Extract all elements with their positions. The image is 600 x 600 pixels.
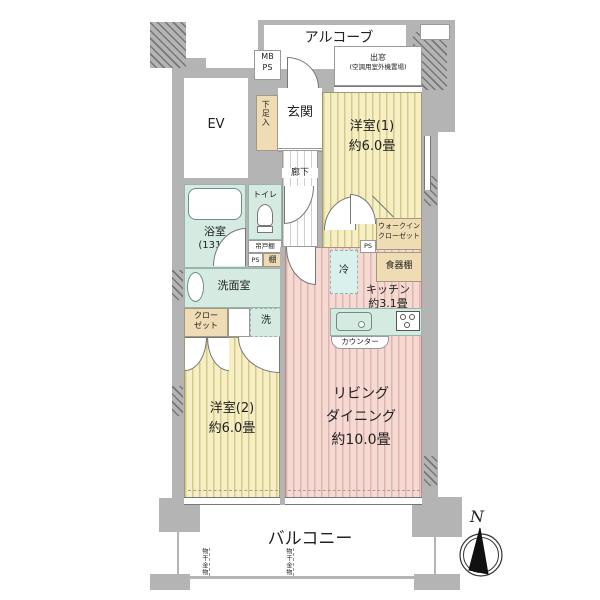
kitchen-stove bbox=[396, 311, 420, 331]
sash-line-ld bbox=[288, 490, 420, 491]
alcove-label: アルコーブ bbox=[284, 30, 394, 46]
window-room2-balcony bbox=[184, 497, 280, 505]
balcony-label: バルコニー bbox=[240, 530, 380, 550]
floor-plan: アルコーブ MB PS EV 出窓 (空調用室外機置場) 玄関 下足入 廊下 洋… bbox=[0, 0, 600, 600]
toilet-label: トイレ bbox=[248, 190, 282, 199]
shoe-cabinet-label: 下足入 bbox=[261, 100, 270, 127]
mb-label: MB bbox=[254, 52, 281, 61]
north-label: N bbox=[462, 508, 492, 526]
washer-label: 洗 bbox=[250, 315, 282, 327]
ld-label2: ダイニング bbox=[300, 409, 422, 425]
washroom-sink bbox=[187, 272, 204, 302]
bathtub bbox=[188, 188, 242, 220]
window-ld-balcony bbox=[285, 497, 422, 505]
wall-block-topleft bbox=[150, 22, 186, 68]
wic-label2: クローゼット bbox=[374, 232, 424, 240]
ps-label: PS bbox=[254, 63, 281, 72]
kitchen-sink bbox=[336, 312, 372, 331]
cupboard-label: 食器棚 bbox=[376, 261, 422, 271]
genkan-label: 玄関 bbox=[278, 106, 322, 121]
closet-label2: ゼット bbox=[184, 321, 228, 330]
washroom-label: 洗面室 bbox=[196, 280, 272, 293]
wall-hatch-left1 bbox=[172, 270, 183, 300]
ld-label1: リビング bbox=[300, 386, 422, 402]
balcony-cap-right bbox=[414, 574, 460, 590]
counter-label: カウンター bbox=[331, 338, 389, 347]
wall-hatch-left2 bbox=[172, 386, 183, 416]
balcony-cap-left bbox=[150, 574, 190, 590]
window-room1-right bbox=[424, 136, 431, 190]
balcony-rail-right bbox=[434, 532, 436, 578]
stove-burner-1 bbox=[400, 314, 406, 320]
closet-gap bbox=[228, 308, 250, 337]
bay-window-note: (空調用室外機置場) bbox=[330, 64, 426, 71]
hanging-shelf-label: 吊戸棚 bbox=[248, 243, 282, 250]
duct-box bbox=[420, 24, 450, 40]
room2-name: 洋室(2) bbox=[184, 402, 280, 417]
bay-window-label: 出窓 bbox=[334, 53, 422, 62]
balcony-rail-left bbox=[177, 532, 179, 578]
laundry-hook-1: 物干金物 bbox=[200, 548, 210, 576]
ld-label3: 約10.0畳 bbox=[300, 432, 422, 448]
wall-hatch-right2 bbox=[424, 456, 437, 486]
kitchen-sink-drain bbox=[358, 321, 365, 328]
toilet-tank bbox=[257, 226, 273, 233]
corridor-label: 廊下 bbox=[282, 168, 318, 178]
stove-burner-2 bbox=[409, 314, 415, 320]
wic-label1: ウォークイン bbox=[374, 222, 424, 230]
laundry-hook-2: 物干金物 bbox=[284, 548, 294, 576]
room1-name: 洋室(1) bbox=[322, 120, 422, 135]
closet-label1: クロー bbox=[184, 311, 228, 320]
fridge-label: 冷 bbox=[330, 265, 358, 277]
kitchen-name: キッチン bbox=[350, 284, 426, 297]
ps2-label: PS bbox=[360, 243, 376, 250]
toilet-bowl bbox=[257, 204, 273, 226]
ps-small-label: PS bbox=[248, 257, 263, 264]
room2-size: 約6.0畳 bbox=[184, 422, 280, 437]
room1-size: 約6.0畳 bbox=[322, 140, 422, 155]
stove-burner-3 bbox=[404, 322, 410, 328]
sash-line-room2 bbox=[188, 490, 278, 491]
wall-stub-topleft bbox=[186, 58, 206, 70]
compass-icon bbox=[457, 527, 505, 579]
ev-label: EV bbox=[184, 118, 248, 133]
